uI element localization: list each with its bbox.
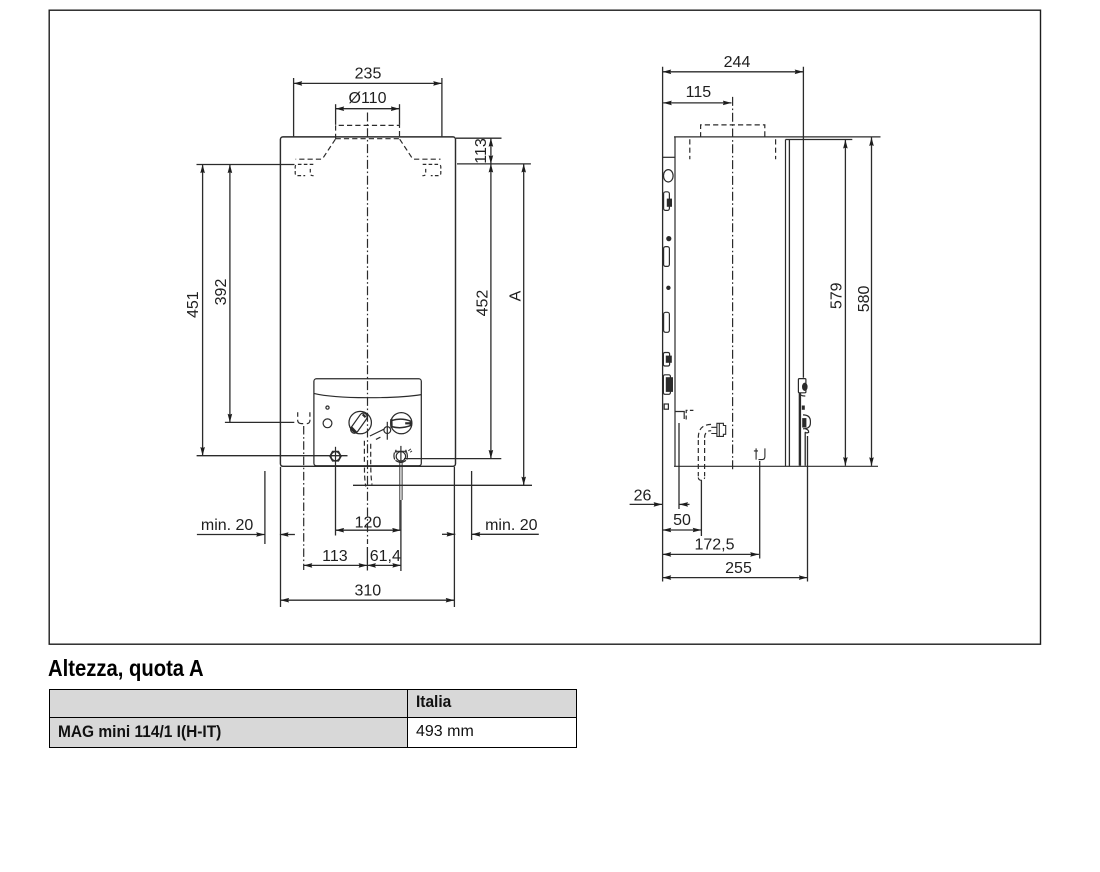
svg-text:255: 255 bbox=[725, 560, 752, 577]
svg-text:172,5: 172,5 bbox=[694, 537, 734, 554]
svg-text:113: 113 bbox=[322, 548, 348, 565]
svg-text:A: A bbox=[508, 290, 525, 301]
svg-text:113: 113 bbox=[473, 138, 490, 164]
svg-text:Ø110: Ø110 bbox=[349, 90, 387, 107]
svg-text:120: 120 bbox=[355, 514, 382, 531]
svg-text:451: 451 bbox=[185, 291, 202, 318]
svg-text:452: 452 bbox=[474, 290, 491, 317]
svg-text:115: 115 bbox=[686, 84, 712, 101]
svg-text:392: 392 bbox=[213, 279, 230, 306]
svg-text:235: 235 bbox=[355, 66, 382, 83]
svg-text:580: 580 bbox=[856, 285, 873, 312]
svg-text:26: 26 bbox=[634, 488, 652, 505]
svg-text:579: 579 bbox=[829, 282, 846, 309]
svg-text:min. 20: min. 20 bbox=[201, 517, 254, 534]
svg-text:310: 310 bbox=[354, 582, 381, 599]
svg-text:61,4: 61,4 bbox=[370, 548, 401, 565]
svg-text:50: 50 bbox=[673, 512, 691, 529]
svg-text:244: 244 bbox=[724, 54, 751, 71]
svg-text:min. 20: min. 20 bbox=[485, 517, 538, 534]
